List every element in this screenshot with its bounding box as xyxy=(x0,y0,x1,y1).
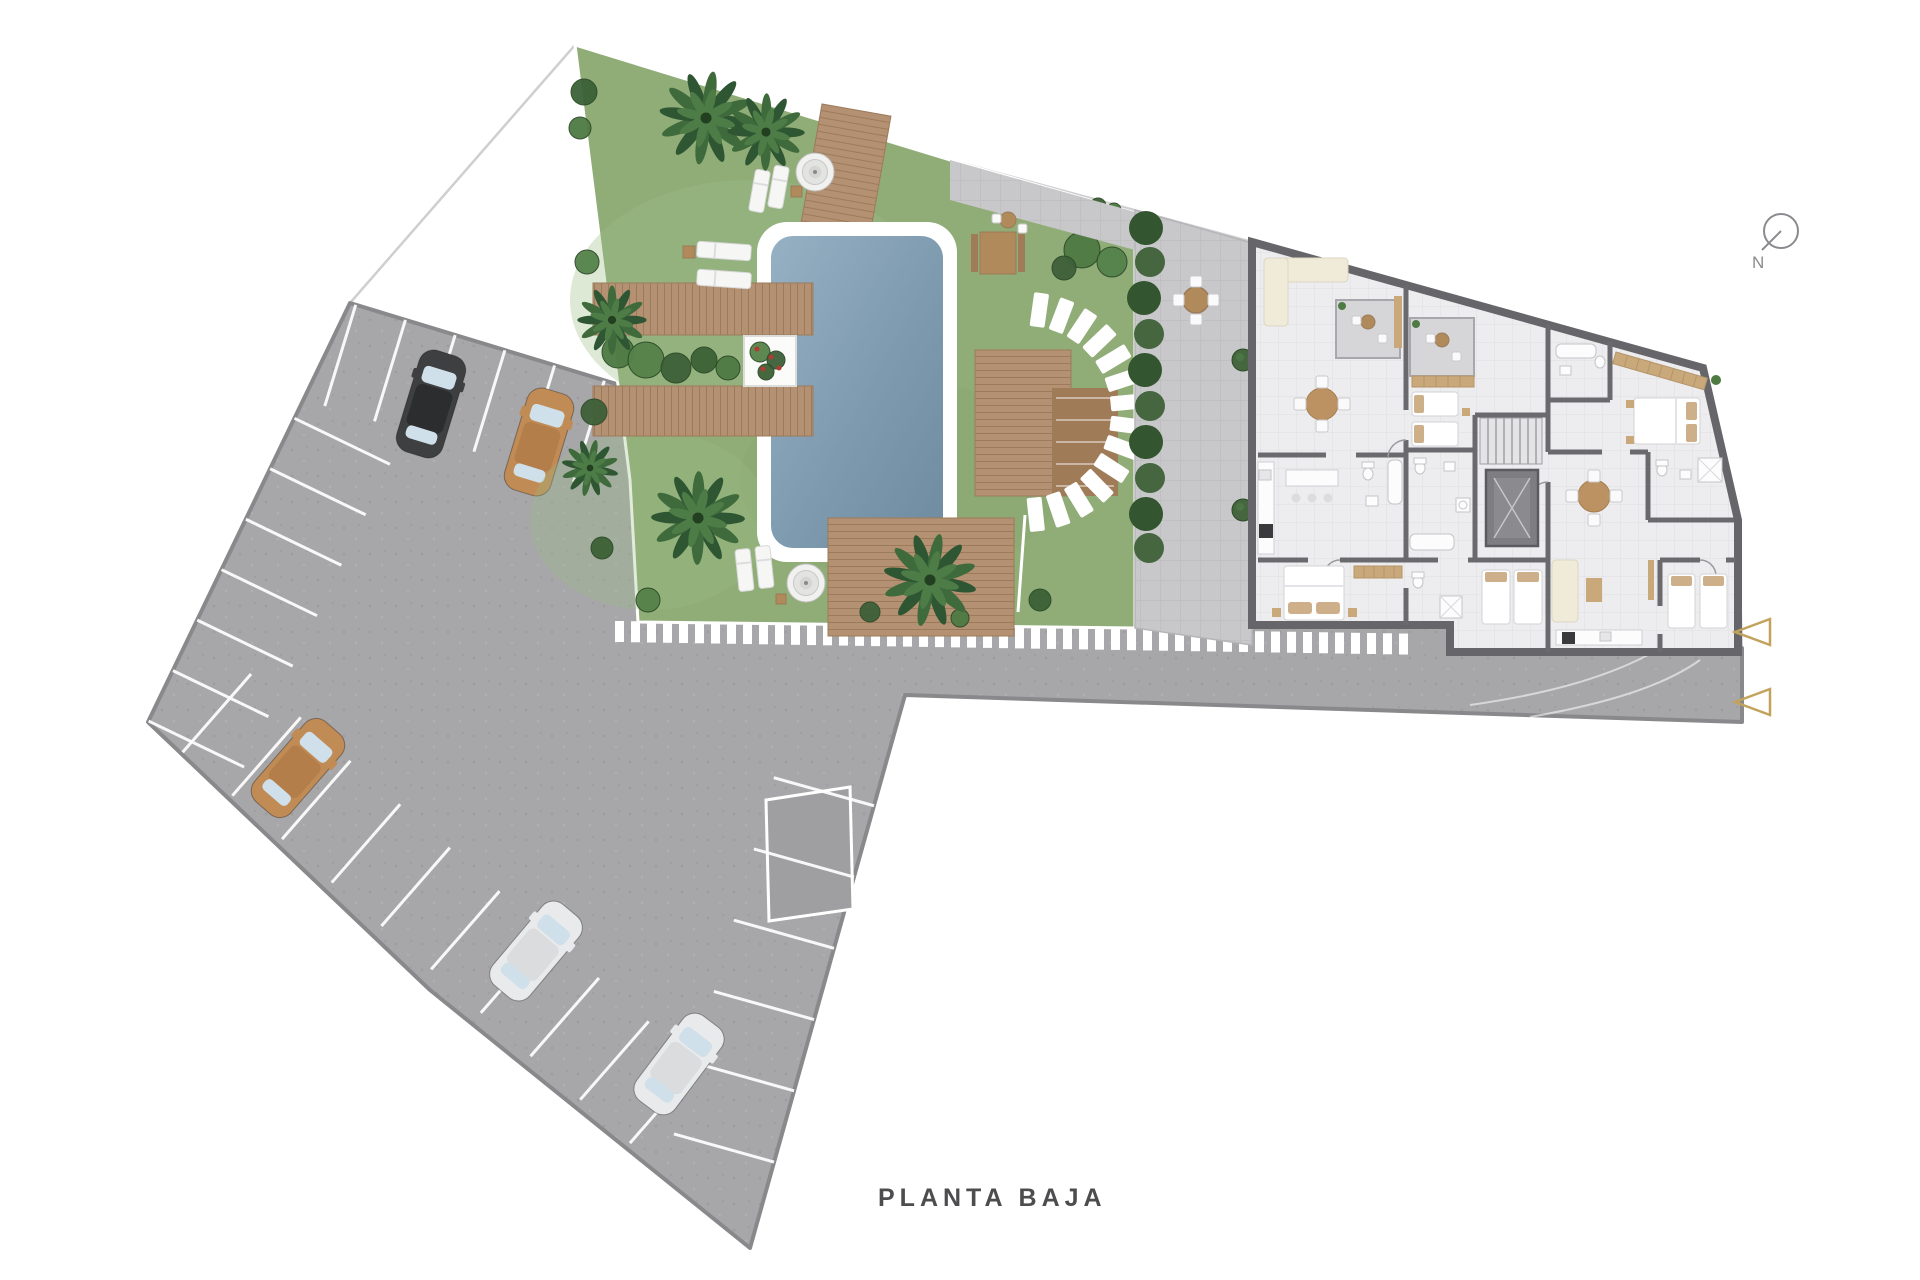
apartment-building xyxy=(1252,242,1738,652)
bush xyxy=(691,347,717,373)
flower xyxy=(761,367,766,372)
unit-terrace xyxy=(1410,318,1474,376)
walkway-stripe xyxy=(1255,631,1264,652)
pillow xyxy=(1414,425,1424,443)
parasol xyxy=(796,153,834,191)
walkway-stripe xyxy=(1015,627,1024,648)
pillow xyxy=(1485,572,1507,582)
walkway-stripe xyxy=(1063,628,1072,649)
hedge-bush xyxy=(1127,281,1161,315)
bush xyxy=(716,356,740,380)
wardrobe xyxy=(1412,376,1474,387)
bush xyxy=(661,353,691,383)
bush xyxy=(860,602,880,622)
walkway-stripe xyxy=(727,623,736,644)
walkway-stripe xyxy=(663,622,672,643)
compass-icon: N xyxy=(1752,214,1798,272)
dining-table xyxy=(1306,388,1338,420)
walkway-stripe xyxy=(1399,634,1408,655)
bush xyxy=(758,364,774,380)
side-table xyxy=(683,246,695,258)
bush xyxy=(1029,589,1051,611)
site-plan-page: N PLANTA BAJA xyxy=(0,0,1920,1280)
walkway-stripe xyxy=(695,622,704,643)
stove xyxy=(1259,524,1273,538)
walkway-stripe xyxy=(1383,633,1392,654)
hedge-bush xyxy=(1135,247,1165,277)
walkway-stripe xyxy=(679,622,688,643)
bush xyxy=(571,79,597,105)
sun-lounger xyxy=(697,269,752,289)
north-label: N xyxy=(1752,253,1764,272)
bush xyxy=(951,609,969,627)
walkway-stripe xyxy=(631,621,640,642)
bush xyxy=(628,342,664,378)
pillow xyxy=(1288,602,1312,614)
walkway-stripe xyxy=(1095,629,1104,650)
walkway-stripe xyxy=(791,624,800,645)
unit-terrace xyxy=(1336,300,1400,358)
side-table xyxy=(776,594,786,604)
pillow xyxy=(1517,572,1539,582)
elevator xyxy=(1486,470,1538,546)
walkway-stripe xyxy=(1031,628,1040,649)
walkway-stripe xyxy=(1335,633,1344,654)
side-table xyxy=(791,186,802,197)
walkway-stripe xyxy=(1351,633,1360,654)
hedge-bush xyxy=(1129,497,1163,531)
walkway-stripe xyxy=(1111,629,1120,650)
pool-pier-deck xyxy=(593,386,813,436)
pillow xyxy=(1316,602,1340,614)
bush xyxy=(569,117,591,139)
plan-title: PLANTA BAJA xyxy=(878,1184,1107,1213)
hedge-bush xyxy=(1134,319,1164,349)
coffee-table xyxy=(1586,578,1602,602)
pillow xyxy=(1414,395,1424,413)
walkway-stripe xyxy=(1303,632,1312,653)
pillow xyxy=(1686,402,1697,420)
walkway-stripe xyxy=(1079,628,1088,649)
parasol xyxy=(787,564,825,602)
walkway-stripe xyxy=(1143,629,1152,650)
hedge-bush xyxy=(1135,391,1165,421)
walkway-stripe xyxy=(1127,629,1136,650)
pillow xyxy=(1686,424,1697,442)
flower xyxy=(777,366,782,371)
parking-reserved-zone xyxy=(766,787,853,921)
walkway-stripe xyxy=(1319,632,1328,653)
walkway-stripe xyxy=(743,623,752,644)
bush xyxy=(1097,247,1127,277)
walkway-stripe xyxy=(775,624,784,645)
hedge-bush xyxy=(1128,353,1162,387)
bush xyxy=(1052,256,1076,280)
plant xyxy=(1711,375,1721,385)
tv-console xyxy=(1648,560,1654,600)
stairwell xyxy=(1480,418,1542,464)
bush xyxy=(581,399,607,425)
stove xyxy=(1562,632,1575,644)
flower xyxy=(755,347,760,352)
walkway-stripe xyxy=(615,621,624,642)
wardrobe xyxy=(1354,566,1402,578)
walkway-stripe xyxy=(1287,632,1296,653)
walkway-stripe xyxy=(1367,633,1376,654)
bush xyxy=(575,250,599,274)
sun-lounger xyxy=(697,241,752,261)
hedge-bush xyxy=(1129,425,1163,459)
tv-console xyxy=(1394,296,1402,348)
sofa xyxy=(1552,560,1578,622)
hedge-bush xyxy=(1134,533,1164,563)
bush xyxy=(591,537,613,559)
bush xyxy=(636,588,660,612)
walkway-stripe xyxy=(807,624,816,645)
flower xyxy=(769,355,774,360)
hedge-bush xyxy=(1135,463,1165,493)
pillow xyxy=(1703,576,1724,586)
walkway-stripe xyxy=(1271,631,1280,652)
pillow xyxy=(1671,576,1692,586)
walkway-stripe xyxy=(647,622,656,643)
walkway-stripe xyxy=(1047,628,1056,649)
floor-plan-canvas: N xyxy=(0,0,1920,1280)
hedge-bush xyxy=(1129,211,1163,245)
walkway-stripe xyxy=(711,623,720,644)
walkway-stripe xyxy=(759,623,768,644)
dining-table xyxy=(1578,480,1610,512)
kitchen-island xyxy=(1286,470,1338,486)
